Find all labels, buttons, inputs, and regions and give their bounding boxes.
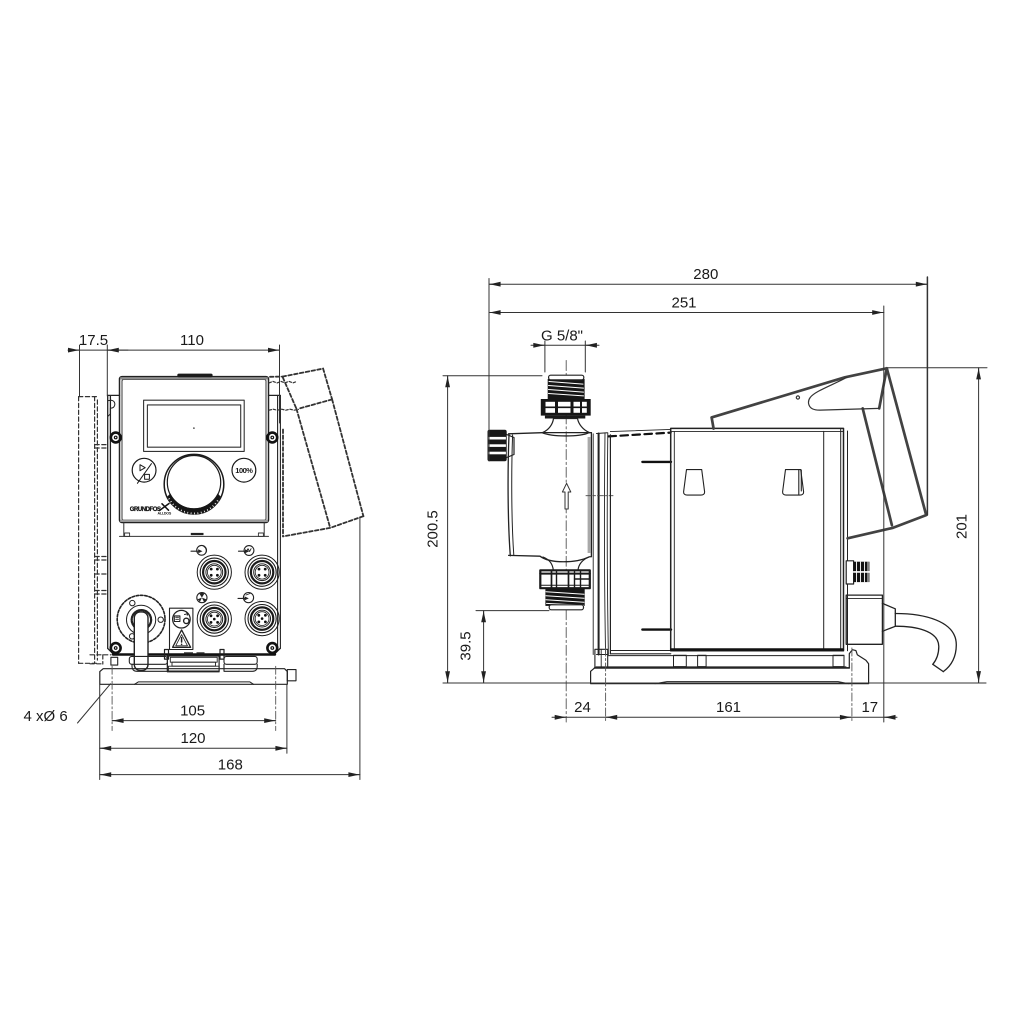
svg-text:280: 280 bbox=[693, 266, 718, 283]
svg-text:GRUNDFOS: GRUNDFOS bbox=[130, 507, 161, 513]
svg-text:200.5: 200.5 bbox=[425, 510, 442, 548]
svg-text:17: 17 bbox=[861, 699, 878, 716]
svg-text:105: 105 bbox=[180, 702, 205, 719]
svg-text:251: 251 bbox=[671, 295, 696, 312]
svg-text:G 5/8": G 5/8" bbox=[541, 327, 583, 344]
svg-text:168: 168 bbox=[218, 756, 243, 773]
svg-text:201: 201 bbox=[954, 514, 971, 539]
svg-text:24: 24 bbox=[574, 699, 591, 716]
svg-text:39.5: 39.5 bbox=[458, 631, 475, 660]
svg-text:120: 120 bbox=[180, 730, 205, 747]
svg-text:ALLDOS: ALLDOS bbox=[158, 512, 172, 516]
svg-text:100%: 100% bbox=[235, 466, 253, 475]
svg-text:110: 110 bbox=[180, 332, 204, 349]
svg-text:17.5: 17.5 bbox=[79, 332, 108, 349]
svg-text:161: 161 bbox=[716, 699, 741, 716]
svg-text:4 xØ 6: 4 xØ 6 bbox=[24, 708, 68, 725]
